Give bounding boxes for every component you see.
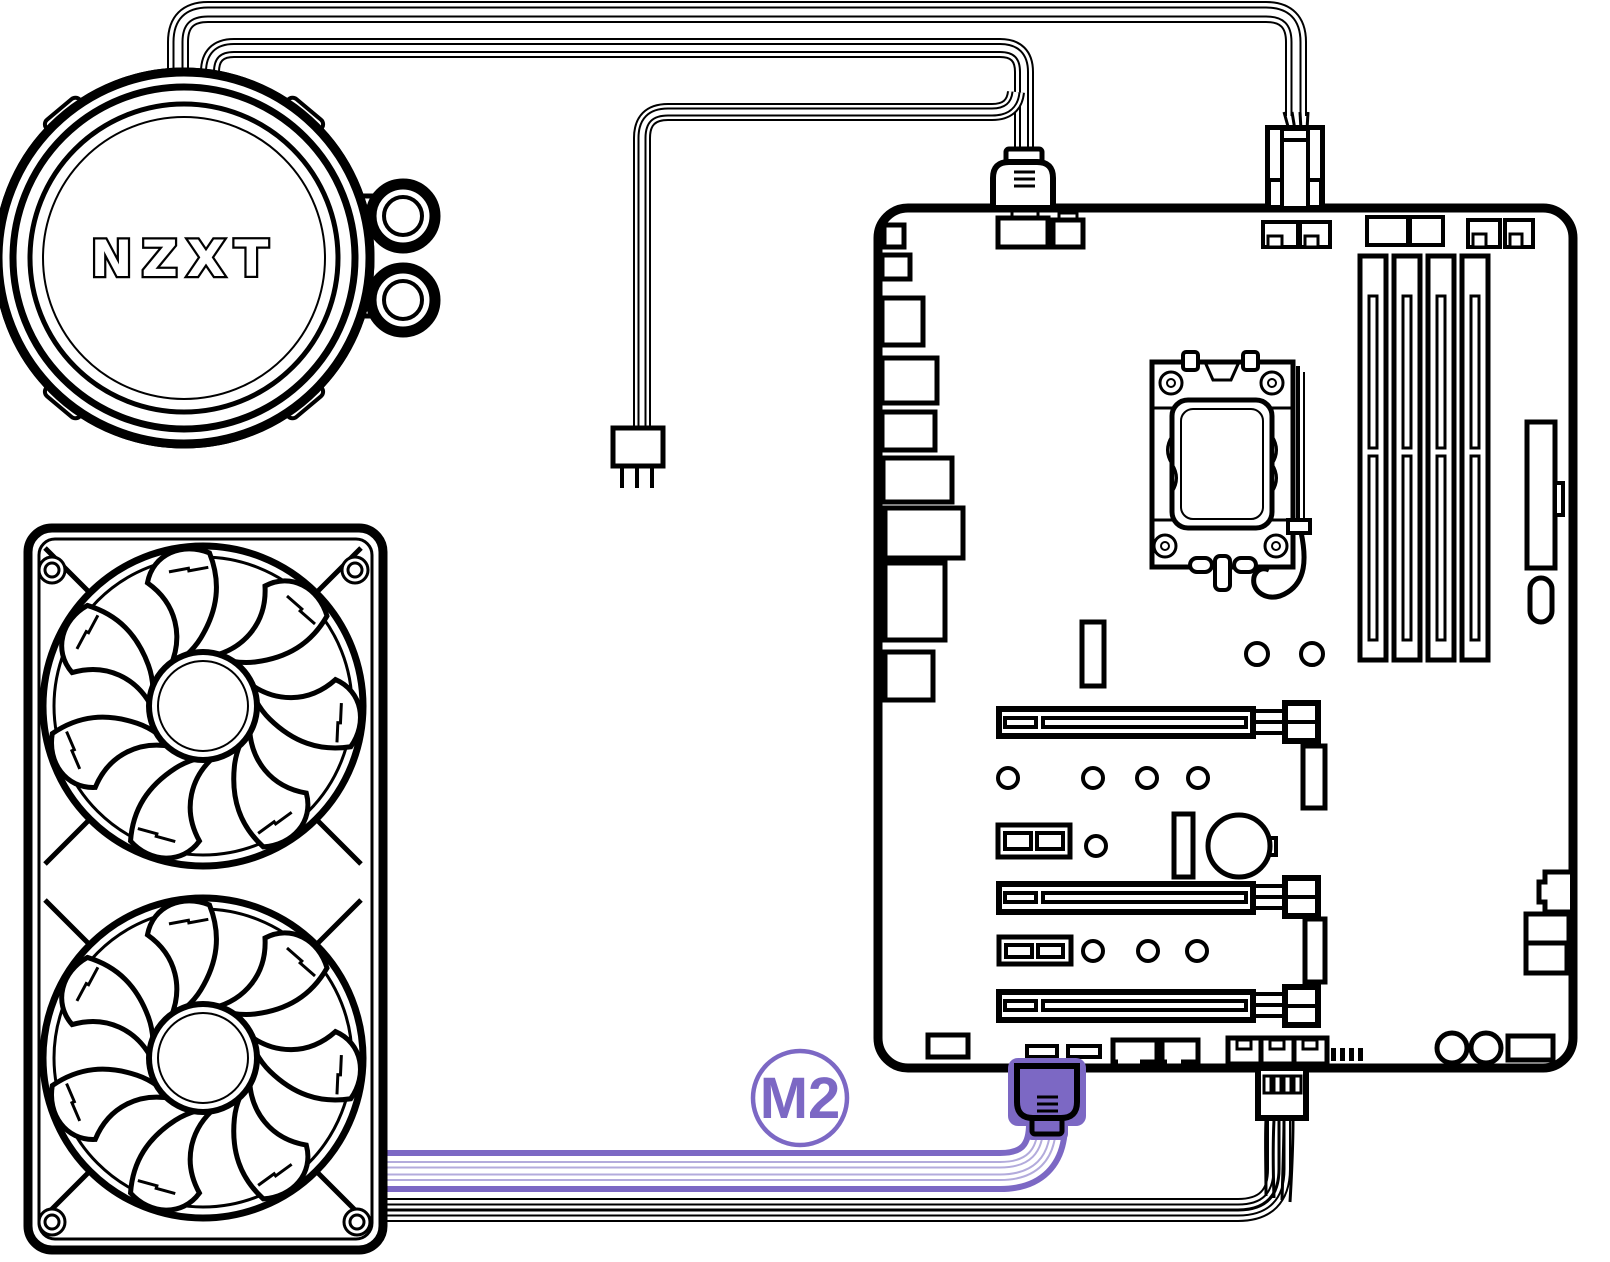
usb-header-block	[1228, 1038, 1327, 1064]
pump-usb-header-cable	[210, 48, 1024, 150]
m2-badge-label: M2	[760, 1066, 841, 1131]
right-edge-pill-connector	[1530, 578, 1552, 622]
pcie-x1-slot-1	[998, 825, 1070, 857]
diagram-canvas: NZXT	[0, 0, 1610, 1262]
motherboard	[878, 208, 1573, 1068]
pump-tube-fitting-bottom	[371, 268, 435, 332]
pump-usb-connector	[993, 149, 1053, 208]
radiator-usb-connector-m2	[1008, 1058, 1086, 1140]
pump-tube-fitting-top	[371, 184, 435, 248]
cpu-socket	[1152, 352, 1310, 597]
radiator	[28, 528, 383, 1250]
argb-header	[1082, 622, 1104, 686]
aio-installation-diagram: NZXT	[0, 0, 1610, 1262]
aio-pump-head: NZXT	[0, 72, 435, 444]
pump-3pin-connector	[613, 428, 663, 488]
pump-logo: NZXT	[91, 230, 278, 288]
m2-step-badge: M2	[753, 1051, 847, 1145]
pump-fan-connector	[1268, 112, 1322, 208]
radiator-usb-cable-m2	[383, 1095, 1047, 1171]
header-vertical	[1174, 814, 1193, 877]
pcie-x1-slot-2	[999, 937, 1071, 964]
